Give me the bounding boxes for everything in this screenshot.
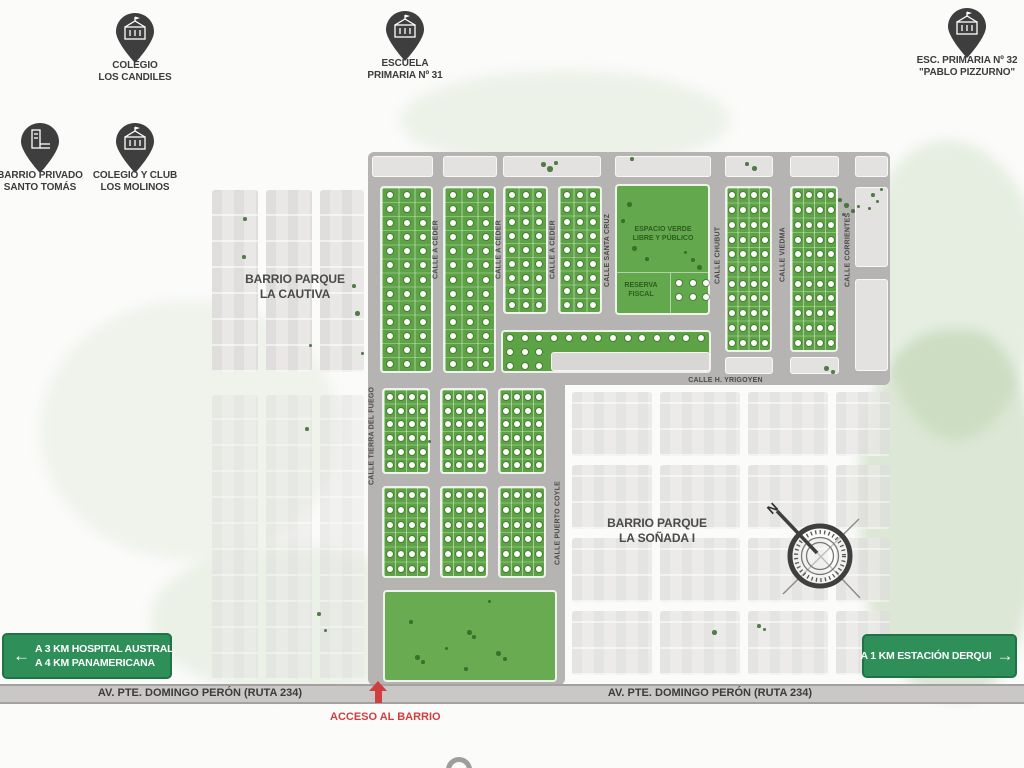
lot-marker (467, 234, 473, 240)
label-reserva-fiscal: RESERVAFISCAL (619, 282, 663, 300)
lot-marker (467, 206, 473, 212)
lot-marker (536, 206, 542, 212)
lot-marker (478, 566, 484, 572)
lot-marker (483, 319, 489, 325)
lot-marker (445, 421, 451, 427)
lot-marker (564, 206, 570, 212)
lot-marker (387, 394, 393, 400)
lot-marker (409, 421, 415, 427)
lot-marker (398, 462, 404, 468)
lot-marker (514, 462, 520, 468)
lot-marker (817, 222, 823, 228)
lot-marker (387, 566, 393, 572)
lot-marker (456, 507, 462, 513)
lot-marker (420, 408, 426, 414)
lot-marker (478, 551, 484, 557)
lot-marker (525, 566, 531, 572)
lot-marker (409, 492, 415, 498)
lot-marker (445, 536, 451, 542)
lot-marker (828, 266, 834, 272)
lot-marker (514, 408, 520, 414)
lot-marker (456, 462, 462, 468)
lot-marker (509, 302, 515, 308)
lot-marker (525, 394, 531, 400)
lot-marker (398, 536, 404, 542)
lot-marker (420, 361, 426, 367)
hospital-distance-sign: ← A 3 KM HOSPITAL AUSTRAL A 4 KM PANAMER… (2, 633, 172, 679)
lot-marker (564, 192, 570, 198)
map-block-vacant (725, 156, 773, 177)
lot-marker (536, 363, 542, 369)
lot-marker (536, 566, 542, 572)
park-divider (670, 273, 671, 314)
right-arrow-icon: → (991, 646, 1018, 666)
street-label: CALLE A CEDER (548, 205, 558, 295)
lot-block (440, 486, 488, 578)
lot-marker (445, 408, 451, 414)
tree-cluster (242, 255, 246, 259)
tree-cluster (757, 624, 761, 628)
lot-marker (503, 566, 509, 572)
tree-cluster (857, 205, 860, 208)
lot-marker (817, 310, 823, 316)
lot-marker (387, 333, 393, 339)
lot-marker (387, 277, 393, 283)
tree-cluster (627, 202, 632, 207)
lot-marker (409, 394, 415, 400)
tree-cluster (503, 657, 507, 661)
lot-marker (445, 507, 451, 513)
lot-marker (828, 222, 834, 228)
lot-marker (566, 335, 572, 341)
lot-marker (503, 408, 509, 414)
lot-marker (456, 551, 462, 557)
label-espacio-verde: ESPACIO VERDELIBRE Y PÚBLICO (618, 226, 708, 244)
park-divider (616, 272, 709, 273)
lot-marker (467, 435, 473, 441)
lot-marker (503, 507, 509, 513)
lot-marker (536, 522, 542, 528)
lot-marker (817, 281, 823, 287)
street-label: CALLE A CEDER (431, 205, 441, 295)
lot-marker (536, 408, 542, 414)
lot-marker (478, 408, 484, 414)
lot-marker (503, 394, 509, 400)
lot-marker (806, 207, 812, 213)
tree-cluster (712, 630, 717, 635)
lot-marker (404, 248, 410, 254)
lot-marker (525, 507, 531, 513)
lot-marker (564, 302, 570, 308)
lot-marker (762, 207, 768, 213)
lot-marker (577, 275, 583, 281)
lot-marker (420, 462, 426, 468)
school-icon (385, 10, 425, 62)
lot-marker (450, 333, 456, 339)
tree-cluster (844, 203, 849, 208)
city-block (748, 392, 828, 456)
map-block-vacant (551, 352, 710, 371)
lot-marker (483, 305, 489, 311)
tree-cluster (645, 257, 649, 261)
lot-marker (404, 192, 410, 198)
lot-block (498, 486, 546, 578)
lot-marker (676, 280, 682, 286)
lot-marker (522, 363, 528, 369)
street-label: CALLE CHUBUT (713, 210, 723, 300)
lot-marker (762, 340, 768, 346)
lot-marker (536, 551, 542, 557)
lot-block (382, 388, 430, 474)
lot-marker (420, 507, 426, 513)
lot-marker (828, 281, 834, 287)
lot-marker (420, 333, 426, 339)
lot-marker (420, 435, 426, 441)
lot-marker (398, 551, 404, 557)
lot-marker (398, 421, 404, 427)
lot-marker (456, 566, 462, 572)
pin-label: ESCUELAPRIMARIA Nº 31 (340, 58, 470, 82)
lot-marker (536, 536, 542, 542)
lot-marker (523, 247, 529, 253)
road-label-left: AV. PTE. DOMINGO PERÓN (RUTA 234) (95, 687, 305, 699)
lot-marker (467, 551, 473, 557)
lot-marker (740, 325, 746, 331)
lot-marker (762, 325, 768, 331)
lot-marker (467, 566, 473, 572)
compass-rose: N (765, 498, 865, 598)
lot-marker (420, 192, 426, 198)
tree-cluster (488, 600, 491, 603)
lot-marker (420, 206, 426, 212)
city-block (748, 611, 828, 675)
lot-marker (404, 319, 410, 325)
lot-marker (404, 220, 410, 226)
lot-marker (795, 207, 801, 213)
lot-marker (514, 566, 520, 572)
lot-marker (456, 421, 462, 427)
lot-marker (817, 207, 823, 213)
tree-cluster (324, 629, 327, 632)
lot-marker (509, 206, 515, 212)
lot-marker (751, 325, 757, 331)
lot-marker (795, 222, 801, 228)
lot-marker (409, 449, 415, 455)
lot-marker (523, 233, 529, 239)
lot-marker (577, 247, 583, 253)
lot-marker (398, 449, 404, 455)
masterplan-map: COLEGIOLOS CANDILES ESCUELAPRIMARIA Nº 3… (0, 0, 1024, 768)
lot-marker (387, 435, 393, 441)
lot-marker (467, 262, 473, 268)
lot-marker (387, 319, 393, 325)
lot-marker (762, 237, 768, 243)
tree-cluster (547, 166, 553, 172)
lot-marker (536, 492, 542, 498)
lot-marker (445, 566, 451, 572)
lot-marker (514, 435, 520, 441)
tree-cluster (467, 630, 472, 635)
lot-marker (525, 492, 531, 498)
lot-marker (478, 394, 484, 400)
lot-marker (467, 492, 473, 498)
lot-marker (523, 261, 529, 267)
lot-marker (503, 435, 509, 441)
lot-marker (456, 492, 462, 498)
tree-cluster (355, 311, 360, 316)
lot-marker (404, 333, 410, 339)
street-label: CALLE H. YRIGOYEN (683, 374, 768, 386)
city-block (212, 395, 258, 680)
lot-marker (478, 421, 484, 427)
lot-marker (478, 492, 484, 498)
tree-cluster (496, 651, 501, 656)
tree-cluster (824, 366, 829, 371)
lot-marker (478, 435, 484, 441)
school-icon (115, 122, 155, 174)
lot-marker (817, 340, 823, 346)
lot-marker (467, 507, 473, 513)
lot-marker (525, 408, 531, 414)
lot-marker (817, 251, 823, 257)
lot-marker (509, 247, 515, 253)
tree-cluster (472, 635, 476, 639)
lot-marker (740, 222, 746, 228)
lot-marker (828, 251, 834, 257)
lot-marker (445, 435, 451, 441)
lot-marker (525, 551, 531, 557)
lot-marker (751, 222, 757, 228)
lot-marker (828, 340, 834, 346)
lot-marker (420, 305, 426, 311)
map-block-vacant (855, 156, 888, 177)
lot-marker (523, 302, 529, 308)
lot-marker (507, 363, 513, 369)
lot-marker (523, 288, 529, 294)
lot-marker (450, 347, 456, 353)
lot-marker (509, 275, 515, 281)
tree-cluster (621, 219, 625, 223)
lot-marker (525, 462, 531, 468)
lot-marker (795, 266, 801, 272)
lot-marker (817, 192, 823, 198)
lot-marker (483, 361, 489, 367)
lot-marker (503, 522, 509, 528)
lot-marker (467, 291, 473, 297)
tree-cluster (630, 157, 634, 161)
lot-marker (445, 462, 451, 468)
lot-marker (523, 192, 529, 198)
lot-marker (654, 335, 660, 341)
lot-marker (387, 305, 393, 311)
lot-marker (387, 291, 393, 297)
lot-marker (523, 219, 529, 225)
access-arrow-icon (375, 690, 382, 703)
city-block (266, 395, 312, 680)
tree-cluster (842, 213, 845, 216)
access-label: ACCESO AL BARRIO (330, 711, 430, 723)
lot-marker (564, 288, 570, 294)
lot-marker (387, 462, 393, 468)
left-arrow-icon: ← (8, 646, 35, 666)
lot-marker (581, 335, 587, 341)
lot-marker (564, 247, 570, 253)
lot-marker (445, 449, 451, 455)
lot-marker (404, 277, 410, 283)
lot-marker (420, 394, 426, 400)
tree-cluster (871, 193, 875, 197)
lot-marker (703, 280, 709, 286)
lot-marker (795, 237, 801, 243)
lot-marker (536, 349, 542, 355)
map-block-vacant (855, 187, 888, 267)
tree-cluster (309, 344, 312, 347)
lot-marker (478, 536, 484, 542)
tree-cluster (317, 612, 321, 616)
lot-marker (420, 319, 426, 325)
street-label: CALLE PUERTO COYLE (553, 476, 563, 571)
lot-marker (456, 394, 462, 400)
lot-block (440, 388, 488, 474)
city-block (572, 611, 652, 675)
road-label-right: AV. PTE. DOMINGO PERÓN (RUTA 234) (605, 687, 815, 699)
lot-marker (467, 449, 473, 455)
lot-marker (467, 305, 473, 311)
lot-marker (514, 394, 520, 400)
lot-marker (387, 507, 393, 513)
lot-marker (445, 492, 451, 498)
lot-marker (751, 207, 757, 213)
lot-marker (450, 291, 456, 297)
tree-cluster (851, 209, 855, 213)
lot-marker (420, 536, 426, 542)
lot-block (382, 486, 430, 578)
lot-marker (729, 237, 735, 243)
lot-marker (536, 394, 542, 400)
lot-marker (409, 522, 415, 528)
lot-marker (483, 291, 489, 297)
lot-marker (483, 347, 489, 353)
lot-marker (409, 566, 415, 572)
lot-marker (404, 347, 410, 353)
lot-marker (817, 266, 823, 272)
lot-marker (806, 251, 812, 257)
lot-marker (387, 536, 393, 542)
lot-marker (762, 192, 768, 198)
lot-marker (536, 261, 542, 267)
lot-marker (450, 319, 456, 325)
lot-marker (751, 281, 757, 287)
lot-marker (795, 310, 801, 316)
lot-marker (536, 421, 542, 427)
lot-marker (690, 294, 696, 300)
tree-cluster (541, 162, 546, 167)
lot-marker (564, 261, 570, 267)
tree-cluster (868, 207, 871, 210)
tree-cluster (554, 161, 558, 165)
lot-marker (398, 566, 404, 572)
map-block-vacant (443, 156, 497, 177)
tree-cluster (697, 265, 702, 270)
lot-marker (523, 206, 529, 212)
lot-marker (409, 551, 415, 557)
area-label-la-cautiva: BARRIO PARQUELA CAUTIVA (225, 272, 365, 302)
lot-marker (522, 349, 528, 355)
lot-marker (467, 421, 473, 427)
lot-marker (456, 435, 462, 441)
lot-marker (503, 492, 509, 498)
park-block-large (383, 590, 557, 682)
tree-cluster (415, 655, 420, 660)
school-icon (947, 7, 987, 59)
lot-marker (690, 280, 696, 286)
lot-marker (806, 192, 812, 198)
city-block (572, 538, 652, 602)
lot-marker (420, 347, 426, 353)
street-label: CALLE A CEDER (494, 205, 504, 295)
lot-marker (404, 262, 410, 268)
lot-marker (467, 319, 473, 325)
lot-marker (564, 275, 570, 281)
lot-marker (503, 536, 509, 542)
lot-marker (467, 408, 473, 414)
lot-marker (503, 551, 509, 557)
lot-marker (625, 335, 631, 341)
lot-marker (420, 220, 426, 226)
lot-marker (762, 281, 768, 287)
lot-marker (456, 536, 462, 542)
estacion-derqui-sign: A 1 KM ESTACIÓN DERQUI → (862, 634, 1017, 678)
lot-marker (590, 206, 596, 212)
lot-marker (817, 237, 823, 243)
tree-cluster (763, 628, 766, 631)
lot-marker (751, 266, 757, 272)
lot-marker (387, 408, 393, 414)
lot-marker (577, 192, 583, 198)
lot-marker (536, 449, 542, 455)
lot-marker (806, 310, 812, 316)
lot-marker (514, 449, 520, 455)
tree-cluster (684, 251, 687, 254)
lot-marker (404, 305, 410, 311)
lot-marker (420, 566, 426, 572)
lot-marker (483, 220, 489, 226)
lot-marker (398, 507, 404, 513)
tree-cluster (421, 660, 425, 664)
lot-marker (398, 492, 404, 498)
lot-marker (387, 347, 393, 353)
lot-marker (467, 248, 473, 254)
lot-marker (762, 222, 768, 228)
city-block (836, 392, 890, 456)
lot-marker (420, 291, 426, 297)
lot-marker (795, 192, 801, 198)
lot-marker (536, 275, 542, 281)
lot-marker (467, 536, 473, 542)
lot-marker (795, 340, 801, 346)
lot-marker (806, 340, 812, 346)
lot-marker (536, 435, 542, 441)
tree-cluster (745, 162, 749, 166)
pin-label: COLEGIOLOS CANDILES (70, 60, 200, 84)
city-block (660, 392, 740, 456)
lot-marker (676, 294, 682, 300)
tree-cluster (838, 198, 842, 202)
tree-cluster (831, 370, 835, 374)
lot-marker (514, 551, 520, 557)
lot-marker (404, 234, 410, 240)
map-block-vacant (855, 279, 888, 371)
